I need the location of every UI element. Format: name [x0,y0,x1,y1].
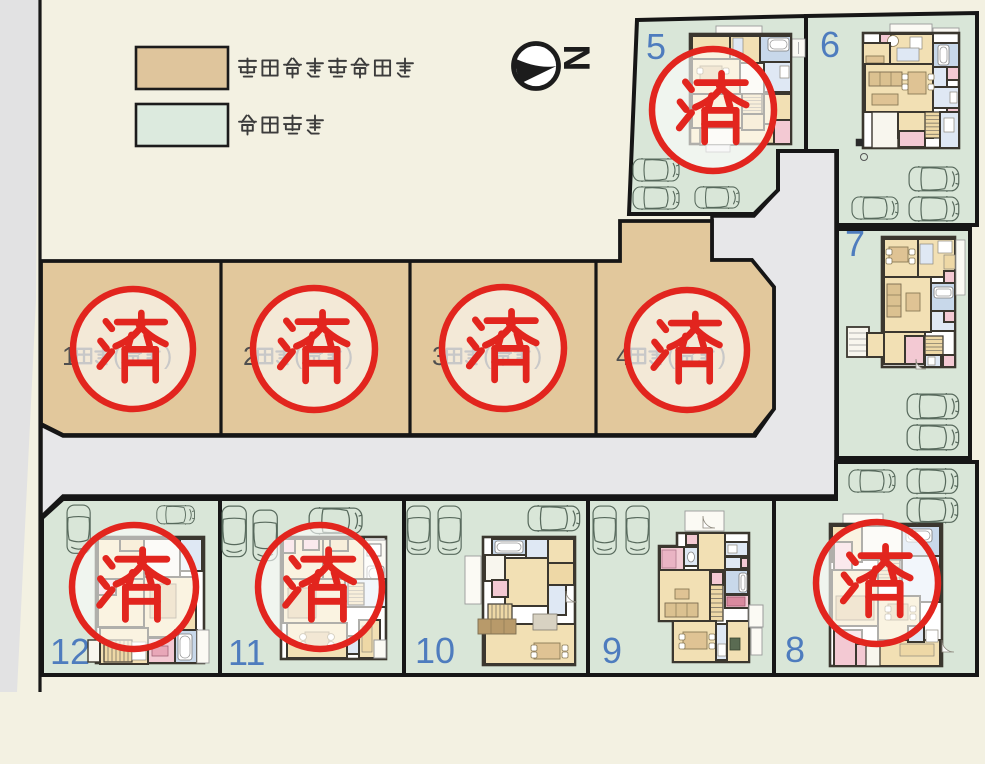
svg-text:8: 8 [785,629,805,670]
svg-text:10: 10 [415,630,455,671]
svg-text:11: 11 [228,632,265,673]
svg-text:N: N [556,45,597,72]
svg-text:7: 7 [845,223,865,264]
svg-text:5: 5 [646,26,666,67]
svg-text:9: 9 [602,630,622,671]
svg-text:12: 12 [50,631,90,672]
svg-text:6: 6 [820,24,840,65]
